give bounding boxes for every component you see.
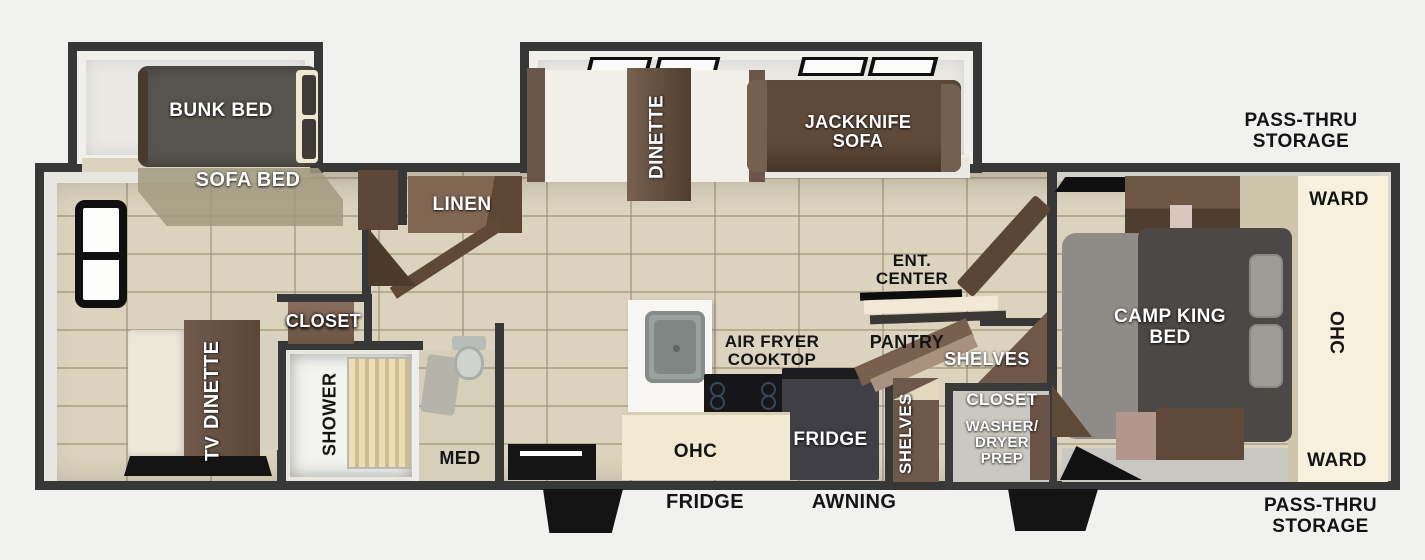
mid-dinette-bench-left — [545, 70, 627, 182]
bath-wall-left — [277, 341, 286, 490]
nightstand-light — [1116, 412, 1156, 460]
dinette-bench-right — [260, 334, 278, 450]
ent-center-label: ENT. CENTER — [860, 252, 964, 289]
jackknife-sofa-arm-left — [747, 80, 767, 172]
bath-divider-wall — [412, 350, 419, 481]
camp-king-line1: CAMP KING — [1114, 307, 1226, 328]
burner-icon — [710, 395, 725, 410]
ward-bottom-label: WARD — [1298, 451, 1376, 472]
entry-mat — [508, 444, 596, 480]
pass-thru-top-label: PASS-THRU STORAGE — [1212, 111, 1390, 152]
tv-label: TV — [202, 430, 226, 466]
med-label: MED — [424, 449, 496, 468]
jackknife-line2: SOFA — [833, 132, 884, 151]
jackknife-line1: JACKKNIFE — [805, 113, 912, 132]
air-fryer-line1: AIR FRYER — [725, 333, 820, 351]
mid-dinette-seatback-left — [527, 68, 545, 182]
bunk-pillow-bottom — [302, 119, 316, 159]
bath-wall-right — [495, 323, 504, 490]
washer-line3: PREP — [981, 451, 1023, 467]
sofa-bed-label: SOFA BED — [186, 170, 310, 192]
cooktop — [704, 374, 784, 416]
entry-mat-step — [520, 451, 582, 456]
fridge-exterior-label: FRIDGE — [655, 492, 755, 514]
closet-utility-label: CLOSET — [953, 391, 1051, 409]
bunkroom-cabinet — [358, 170, 398, 230]
jackknife-sofa-arm-right — [941, 84, 961, 172]
washer-dryer-prep-label: WASHER/ DRYER PREP — [951, 419, 1053, 468]
shower-accordion-door — [347, 357, 411, 469]
mid-dinette-bench-right — [691, 70, 749, 182]
entry-step-bedroom — [1008, 489, 1098, 531]
dinette-left-label: DINETTE — [200, 330, 226, 440]
dinette-mid-label: DINETTE — [644, 84, 672, 190]
shower-label: SHOWER — [317, 360, 343, 468]
camp-king-line2: BED — [1149, 328, 1190, 349]
pass-thru-bottom-line2: STORAGE — [1272, 517, 1368, 538]
shelves-tall-label: SHELVES — [893, 384, 919, 484]
shelves-wall — [885, 378, 893, 490]
shelves-wide-label: SHELVES — [933, 350, 1041, 369]
fridge-interior-label: FRIDGE — [787, 430, 874, 451]
bunk-headboard — [138, 70, 148, 163]
awning-label: AWNING — [795, 492, 913, 514]
bed-pillow-top — [1249, 254, 1283, 318]
burner-icon — [761, 395, 776, 410]
pass-thru-bottom-label: PASS-THRU STORAGE — [1248, 496, 1393, 537]
ent-center-line1: ENT. — [893, 252, 931, 270]
linen-label: LINEN — [412, 195, 512, 216]
ward-top-label: WARD — [1300, 190, 1378, 211]
left-window — [75, 200, 127, 308]
left-wall-lining — [44, 172, 57, 481]
bunk-pillow-top — [302, 75, 316, 115]
bunk-bed-label: BUNK BED — [156, 101, 286, 122]
air-fryer-cooktop-label: AIR FRYER COOKTOP — [702, 333, 842, 370]
rv-floorplan: BUNK BED SOFA BED DINETTE TV CLOSET SHOW… — [0, 0, 1425, 560]
washer-line1: WASHER/ — [966, 419, 1039, 435]
kitchen-sink — [645, 311, 705, 383]
left-window-divider — [83, 252, 119, 260]
air-fryer-line2: COOKTOP — [728, 351, 816, 369]
jackknife-sofa-label: JACKKNIFE SOFA — [788, 113, 928, 152]
pass-thru-top-line1: PASS-THRU — [1244, 111, 1357, 132]
sink-drain — [673, 345, 680, 352]
sofa-window-right — [868, 57, 939, 76]
entry-step-main — [543, 489, 623, 533]
ohc-kitchen-label: OHC — [658, 442, 733, 463]
ohc-bedroom-label: OHC — [1322, 300, 1348, 366]
pass-thru-top-line2: STORAGE — [1253, 132, 1349, 153]
bed-pillow-bottom — [1249, 324, 1283, 388]
closet-left-label: CLOSET — [276, 312, 371, 331]
pass-thru-bottom-line1: PASS-THRU — [1264, 496, 1377, 517]
dinette-floor-mat — [124, 456, 272, 476]
sofa-window-left — [798, 57, 869, 76]
dinette-bench-left — [128, 330, 186, 456]
ent-center-line2: CENTER — [876, 270, 948, 288]
bedroom-wall — [1047, 163, 1057, 391]
nightstand-dark — [1156, 408, 1244, 460]
closet-wall-top — [277, 294, 372, 302]
toilet-bowl — [454, 346, 484, 380]
camp-king-bed-label: CAMP KING BED — [1096, 307, 1244, 348]
bedroom-tan-cabinet — [1240, 176, 1293, 230]
washer-line2: DRYER — [975, 435, 1029, 451]
